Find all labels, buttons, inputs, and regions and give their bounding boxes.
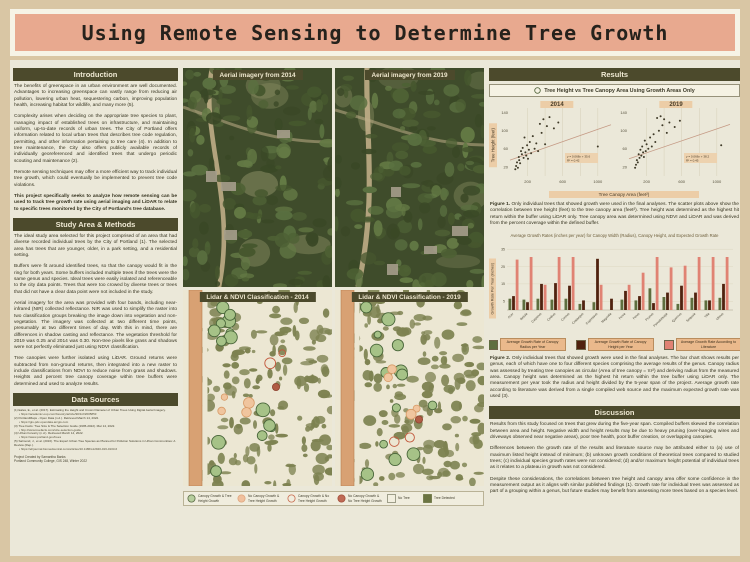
svg-text:Tilia: Tilia (704, 312, 711, 319)
svg-text:140: 140 (501, 110, 508, 115)
aerial-2019-image (335, 68, 484, 287)
paragraph: Buffers were fit around identified trees… (14, 264, 177, 296)
svg-text:1000: 1000 (712, 179, 722, 184)
legend-square-icon (387, 494, 396, 503)
paragraph: Differences between the growth rate of t… (490, 446, 739, 471)
legend-circle-icon (287, 494, 296, 503)
classification-legend: Canopy Growth & Tree Height GrowthNo Can… (183, 491, 484, 506)
section-header-data-sources: Data Sources (13, 393, 178, 406)
figure2-caption: Figure 2. Only individual trees that sho… (490, 356, 739, 400)
svg-text:Pseudotsuga: Pseudotsuga (652, 312, 668, 328)
legend-item: No Canopy Growth & No Tree Height Growth (337, 494, 384, 503)
legend-circle-icon (187, 494, 196, 503)
legend-item: No Canopy Growth & Tree Height Growth (237, 494, 284, 503)
data-sources-references: (1) Eales, E., et al. (2017). Estimating… (14, 409, 177, 452)
methods-text: The ideal study area selected for this p… (13, 234, 178, 388)
section-header-introduction: Introduction (13, 68, 178, 81)
svg-text:25: 25 (501, 265, 505, 269)
paragraph-bold: This project specifically seeks to analy… (14, 194, 177, 213)
discussion-text: Results from this study focused on trees… (489, 422, 740, 495)
scatter-2019: 2019 20060010002060100140y = 0.066x + 38… (618, 101, 734, 190)
aerial-2019-label: Aerial imagery from 2019 (364, 70, 454, 80)
scatter-plots-row: Tree Height (feet) 2014 2006001000206010… (489, 101, 740, 190)
paragraph: The benefits of greenspace in an urban e… (14, 84, 177, 109)
left-column: Introduction The benefits of greenspace … (13, 68, 178, 554)
aerial-2014-image (183, 68, 332, 287)
svg-text:140: 140 (620, 110, 627, 115)
classification-2014-image (183, 290, 332, 486)
introduction-text: The benefits of greenspace in an urban e… (13, 84, 178, 213)
paragraph: Tree canopies were further isolated usin… (14, 356, 177, 388)
section-header-results: Results (489, 68, 740, 81)
paragraph: Complexity arises when deciding on the a… (14, 114, 177, 165)
project-credits: Project Created by Samantha BanksPortlan… (14, 455, 177, 464)
legend-item: No Tree (387, 494, 420, 503)
legend-item: Canopy Growth & No Tree Height Growth (287, 494, 334, 503)
scatter-x-axis-label: Tree Canopy Area (feet²) (549, 191, 699, 198)
right-column: Results Tree Height vs Tree Canopy Area … (489, 68, 740, 554)
svg-text:Cedrus: Cedrus (546, 312, 556, 322)
imagery-grid: Aerial imagery from 2014 Aerial imagery … (183, 68, 484, 486)
svg-text:Sequoia: Sequoia (685, 312, 696, 323)
bar-chart: 5152535AcerBetulaCarpinusCedrusCornusCra… (497, 240, 735, 336)
reference-url: • https://ehjournal.biomedcentral.com/ar… (14, 448, 177, 452)
scatter-2019-chart: 20060010002060100140y = 0.066x + 38.2R² … (618, 101, 734, 185)
svg-text:Prunus: Prunus (644, 312, 654, 322)
svg-text:5: 5 (503, 300, 505, 304)
figure1-caption: Figure 1. Only individual trees that sho… (490, 202, 739, 227)
svg-text:Cupressus: Cupressus (585, 312, 599, 326)
classification-2019-image (335, 290, 484, 486)
paragraph: Aerial imagery for the area was provided… (14, 301, 177, 352)
middle-column: Aerial imagery from 2014 Aerial imagery … (183, 68, 484, 554)
aerial-2014-label: Aerial imagery from 2014 (212, 70, 302, 80)
section-header-discussion: Discussion (489, 406, 740, 419)
aerial-2019-panel: Aerial imagery from 2019 (335, 68, 484, 287)
svg-text:Acer: Acer (507, 312, 515, 320)
legend-circle-icon (237, 494, 246, 503)
poster-title-box: Using Remote Sensing to Determine Tree G… (15, 14, 735, 51)
svg-text:R² = 0.42: R² = 0.42 (567, 159, 580, 163)
poster-title-band: Using Remote Sensing to Determine Tree G… (10, 9, 740, 56)
legend-square-icon (423, 494, 432, 503)
svg-text:600: 600 (559, 179, 566, 184)
svg-text:R² = 0.45: R² = 0.45 (686, 159, 699, 163)
scatter-2014-chart: 20060010002060100140y = 0.068x + 35.6R² … (499, 101, 615, 185)
svg-text:35: 35 (501, 248, 505, 252)
classification-2019-label: Lidar & NDVI Classification - 2019 (351, 292, 467, 302)
svg-text:20: 20 (504, 164, 509, 169)
svg-text:Ulmus: Ulmus (715, 312, 725, 322)
svg-text:Quercus: Quercus (671, 312, 683, 324)
bar-legend-item: Average Growth Rate of Canopy Radius per… (489, 338, 566, 351)
bar-y-axis-label: Growth Rate Per Year (inches) (489, 259, 496, 319)
legend-item: Tree Detected (423, 494, 456, 503)
results-subtitle-text: Tree Height vs Tree Canopy Area Using Gr… (544, 88, 695, 94)
section-header-study-area-methods: Study Area & Methods (13, 218, 178, 231)
aerial-2014-panel: Aerial imagery from 2014 (183, 68, 332, 287)
paragraph: Results from this study focused on trees… (490, 422, 739, 441)
bar-legend-item: Average Growth Rate According to Literat… (664, 338, 741, 351)
scatter-2014: 2014 20060010002060100140y = 0.068x + 35… (499, 101, 615, 190)
svg-text:200: 200 (524, 179, 531, 184)
bar-legend-item: Average Growth Rate of Canopy Height per… (576, 338, 654, 351)
svg-text:100: 100 (501, 128, 508, 133)
paragraph: Despite these considerations, the correl… (490, 477, 739, 496)
svg-text:60: 60 (504, 146, 509, 151)
results-subtitle: Tree Height vs Tree Canopy Area Using Gr… (489, 84, 740, 97)
classification-2019-panel: Lidar & NDVI Classification - 2019 (335, 290, 484, 486)
svg-text:600: 600 (678, 179, 685, 184)
svg-text:60: 60 (623, 146, 628, 151)
svg-text:Carpinus: Carpinus (531, 312, 543, 324)
svg-text:Pinus: Pinus (632, 312, 641, 321)
bar-chart-legend: Average Growth Rate of Canopy Radius per… (489, 338, 740, 351)
svg-text:Crataegus: Crataegus (571, 312, 585, 326)
svg-text:Picea: Picea (618, 312, 627, 321)
svg-text:100: 100 (620, 128, 627, 133)
scatter-2019-year-label: 2019 (659, 101, 692, 108)
bar-legend-swatch (576, 340, 586, 350)
growth-area-circle-icon (534, 87, 541, 94)
classification-2014-panel: Lidar & NDVI Classification - 2014 (183, 290, 332, 486)
scatter-y-axis-label: Tree Height (feet) (489, 123, 497, 167)
bar-chart-title: Average Growth Rates (inches per year) f… (489, 233, 740, 238)
bar-chart-row: Growth Rate Per Year (inches) 5152535Ace… (489, 240, 740, 336)
svg-text:Magnolia: Magnolia (600, 312, 612, 324)
classification-2014-label: Lidar & NDVI Classification - 2014 (199, 292, 315, 302)
paragraph: Remote sensing techniques may offer a mo… (14, 170, 177, 189)
credit-line: Portland Community College, GIS 248, Win… (14, 459, 177, 463)
svg-text:Cornus: Cornus (560, 312, 570, 322)
svg-text:20: 20 (623, 164, 628, 169)
svg-text:Betula: Betula (519, 312, 528, 321)
legend-circle-icon (337, 494, 346, 503)
svg-text:15: 15 (501, 283, 505, 287)
bar-legend-swatch (489, 340, 498, 350)
bar-legend-swatch (664, 340, 674, 350)
paragraph: The ideal study area selected for this p… (14, 234, 177, 259)
legend-item: Canopy Growth & Tree Height Growth (187, 494, 234, 503)
svg-text:200: 200 (643, 179, 650, 184)
scatter-2014-year-label: 2014 (540, 101, 573, 108)
svg-text:1000: 1000 (593, 179, 603, 184)
poster-title: Using Remote Sensing to Determine Tree G… (82, 21, 669, 45)
